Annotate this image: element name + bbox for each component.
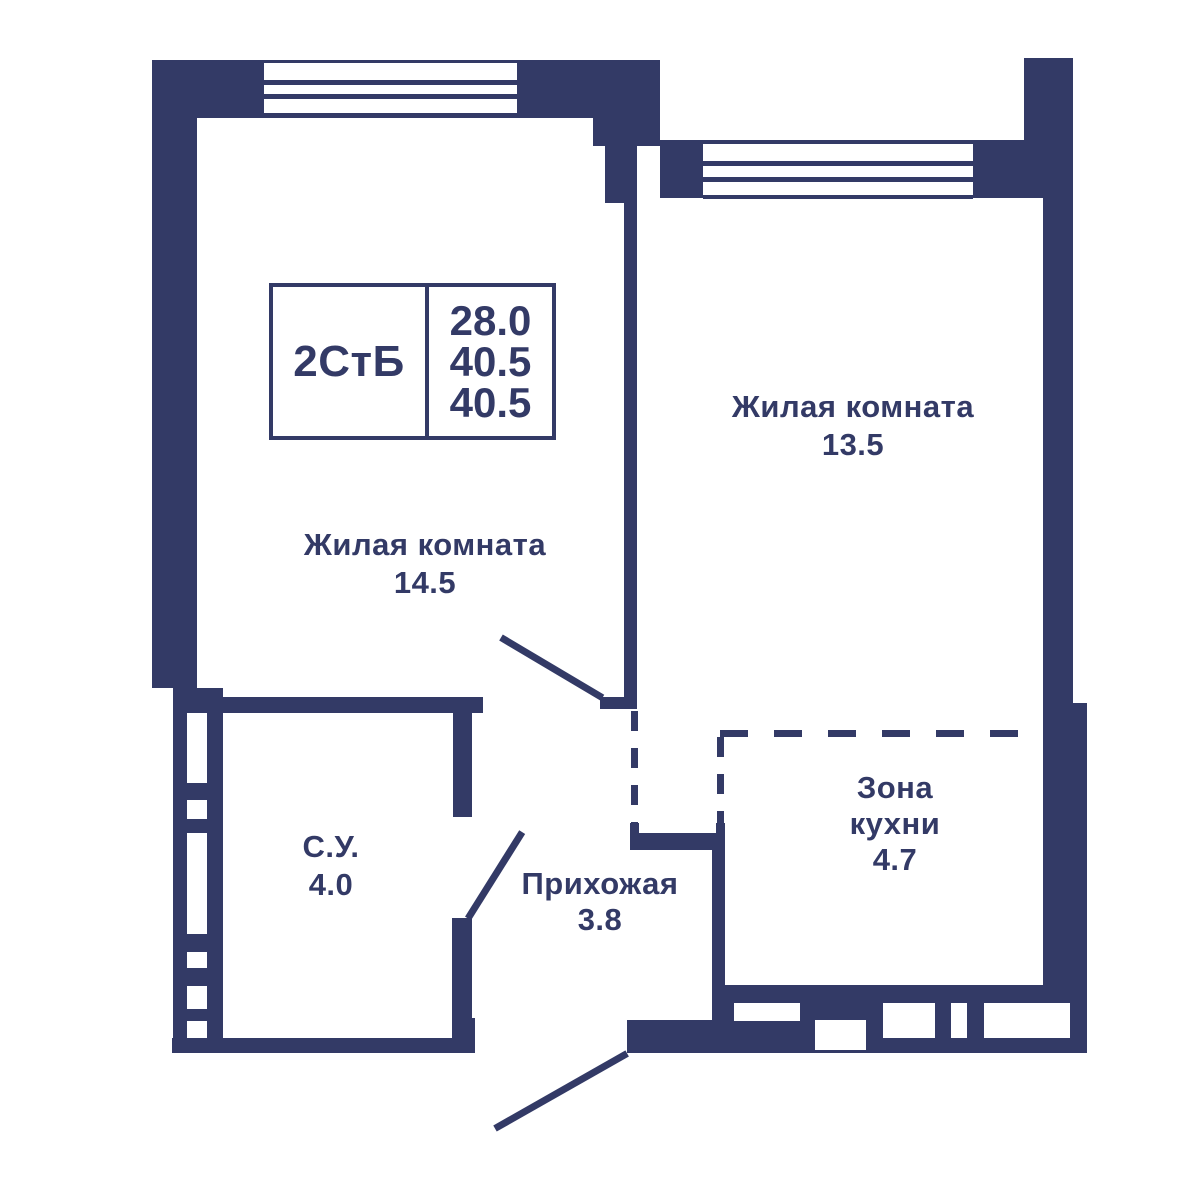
room-label-living1: Жилая комната 14.5 (265, 526, 585, 602)
wall-hallway-kitchen-divider (712, 843, 725, 1023)
room-name: Жилая комната (304, 527, 546, 562)
wall-hallway-top (634, 833, 723, 850)
unit-area-value: 28.0 (450, 300, 532, 341)
room-label-kitchen: Зона кухни 4.7 (795, 770, 995, 878)
shaft-slot (187, 952, 207, 968)
door-swing-entry (493, 1050, 629, 1131)
wall-hallway-bottom (627, 1020, 725, 1053)
wall-right-window-left-pier (660, 140, 703, 198)
wall-middle-column (605, 145, 637, 203)
dashed-line-room-kitchen-boundary (631, 711, 638, 833)
window-left-room-bar (264, 99, 517, 113)
wall-top-right-column (1024, 58, 1073, 198)
unit-area-value: 40.5 (450, 341, 532, 382)
wall-between-rooms-foot (600, 697, 637, 709)
floor-plan: 2СтБ 28.0 40.5 40.5 Жилая комната 14.5 Ж… (0, 0, 1200, 1200)
wall-between-rooms (624, 200, 637, 708)
kitchen-wall-cutout (734, 1003, 800, 1021)
room-name: Зона (857, 770, 933, 805)
window-left-room-bar (264, 85, 517, 94)
room-name: Жилая комната (732, 389, 974, 424)
wall-left-exterior (152, 60, 197, 688)
window-right-room-bar (703, 166, 973, 177)
door-swing-living1 (499, 634, 604, 700)
dashed-line-kitchen-zone-left (717, 737, 724, 833)
info-box: 2СтБ 28.0 40.5 40.5 (269, 283, 556, 440)
room-area: 3.8 (490, 902, 710, 938)
room-area: 4.0 (251, 866, 411, 904)
window-right-room-bar (703, 182, 973, 195)
room-label-bathroom: С.У. 4.0 (251, 828, 411, 904)
wall-bathroom-right-lower (452, 918, 472, 1019)
kitchen-wall-cutout (951, 1003, 967, 1038)
dashed-line-kitchen-zone-top (720, 730, 1043, 737)
window-right-room-bar (703, 144, 973, 161)
kitchen-wall-cutout (883, 1003, 935, 1038)
wall-right-upper (1043, 198, 1073, 703)
room-area: 4.7 (795, 842, 995, 878)
room-area: 14.5 (265, 564, 585, 602)
kitchen-wall-cutout (984, 1003, 1070, 1038)
room-label-living2: Жилая комната 13.5 (693, 388, 1013, 464)
shaft-slot (187, 800, 207, 819)
room-area: 13.5 (693, 426, 1013, 464)
shaft-slot (187, 1021, 207, 1038)
wall-bathroom-right-upper (453, 713, 472, 817)
room-name: С.У. (302, 829, 359, 864)
kitchen-wall-cutout (815, 1020, 866, 1050)
wall-right-window-right-pier (973, 140, 1024, 198)
unit-type-label: 2СтБ (273, 287, 429, 436)
shaft-slot (187, 833, 207, 934)
room-label-hallway: Прихожая 3.8 (490, 866, 710, 938)
room-name: Прихожая (522, 866, 679, 901)
unit-areas: 28.0 40.5 40.5 (429, 287, 552, 436)
unit-area-value: 40.5 (450, 382, 532, 423)
room-name: кухни (795, 806, 995, 842)
wall-middle-block (593, 117, 660, 146)
shaft-slot (187, 713, 207, 783)
window-left-room-bar (264, 63, 517, 80)
shaft-slot (187, 986, 207, 1009)
